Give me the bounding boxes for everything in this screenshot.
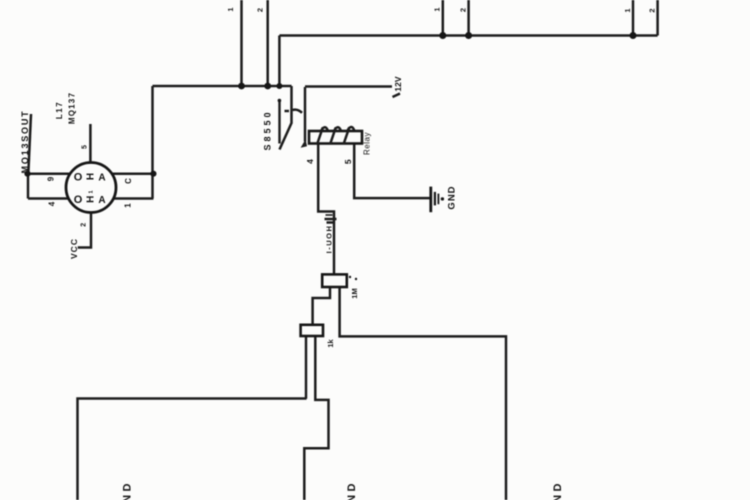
svg-text:C: C: [124, 178, 133, 184]
svg-text:4: 4: [48, 201, 57, 206]
svg-text:1M: 1M: [350, 288, 359, 298]
svg-text:1: 1: [89, 190, 95, 193]
svg-text:VCC: VCC: [69, 238, 79, 259]
svg-text:MQ137: MQ137: [68, 92, 77, 124]
svg-text:2: 2: [81, 223, 88, 227]
svg-text:1: 1: [625, 8, 632, 12]
svg-text:O: O: [74, 172, 83, 184]
svg-text:GND: GND: [447, 185, 458, 209]
svg-text:A: A: [98, 173, 105, 184]
svg-text:MQ13SOUT: MQ13SOUT: [20, 110, 30, 174]
svg-text:H: H: [86, 196, 97, 203]
svg-text:1k: 1k: [326, 339, 335, 348]
svg-text:2: 2: [648, 8, 657, 12]
svg-text:A: A: [98, 195, 105, 206]
svg-text:GND: GND: [552, 480, 564, 500]
svg-text:O: O: [74, 194, 83, 206]
svg-text:4: 4: [305, 159, 315, 164]
svg-text:S8550: S8550: [263, 109, 273, 150]
svg-text:I-UOH: I-UOH: [325, 225, 334, 254]
svg-text:9: 9: [47, 176, 56, 181]
svg-text:L17: L17: [55, 101, 64, 119]
svg-text:H: H: [86, 173, 97, 180]
svg-text:12V: 12V: [393, 76, 403, 91]
svg-text:1: 1: [123, 203, 132, 208]
svg-text:1: 1: [228, 7, 235, 11]
svg-text:5: 5: [82, 145, 89, 149]
svg-text:Relay: Relay: [363, 132, 372, 155]
svg-text:1: 1: [435, 7, 442, 11]
svg-text:2: 2: [459, 8, 468, 12]
svg-text:GND: GND: [122, 480, 134, 500]
svg-text:5: 5: [343, 159, 353, 164]
svg-text:2: 2: [256, 8, 265, 12]
svg-text:GND: GND: [346, 480, 358, 500]
